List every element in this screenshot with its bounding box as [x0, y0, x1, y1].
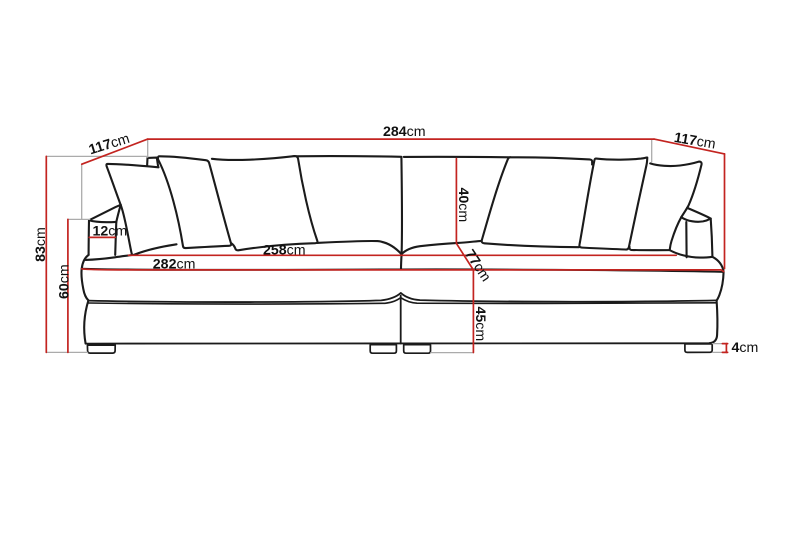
- svg-text:83cm: 83cm: [33, 227, 49, 262]
- svg-text:4cm: 4cm: [732, 340, 759, 356]
- svg-text:60cm: 60cm: [56, 264, 72, 299]
- svg-text:284cm: 284cm: [383, 124, 426, 140]
- svg-text:12cm: 12cm: [93, 224, 128, 240]
- svg-text:40cm: 40cm: [455, 188, 471, 223]
- svg-text:45cm: 45cm: [472, 307, 488, 342]
- svg-text:282cm: 282cm: [153, 257, 196, 273]
- svg-text:258cm: 258cm: [263, 242, 306, 258]
